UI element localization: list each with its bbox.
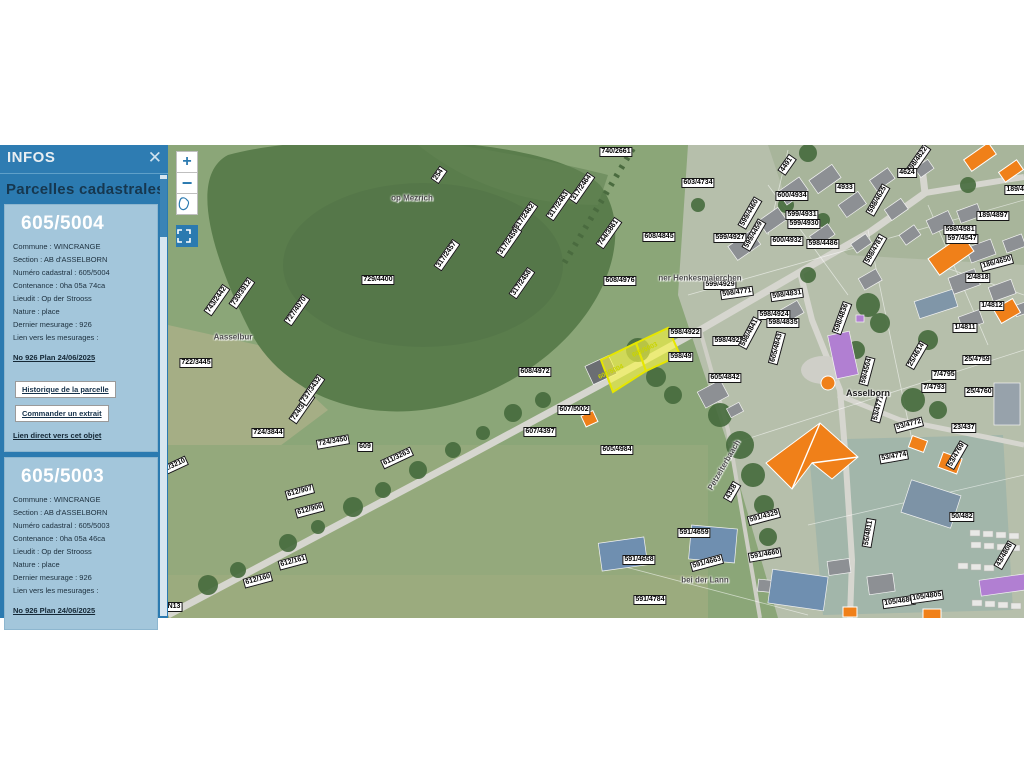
aerial-imagery [168, 145, 1024, 618]
close-icon[interactable]: ✕ [148, 148, 162, 168]
parcel-attr: Lien vers les mesurages : [13, 587, 153, 595]
fullscreen-arrows-icon [177, 229, 191, 243]
parcel-attr: Section : AB d'ASSELBORN [13, 509, 153, 517]
parcel-attr: Dernier mesurage : 926 [13, 321, 153, 329]
parcel-attr: Dernier mesurage : 926 [13, 574, 153, 582]
parcel-attr: Section : AB d'ASSELBORN [13, 256, 153, 264]
luxembourg-outline-icon [177, 197, 191, 211]
mesurage-plan-link[interactable]: No 926 Plan 24/06/2025 [13, 353, 95, 362]
zoom-to-extent-button[interactable] [176, 193, 198, 215]
direct-link[interactable]: Lien direct vers cet objet [13, 431, 101, 440]
parcel-attr: Nature : place [13, 308, 153, 316]
zoom-in-button[interactable]: + [176, 151, 198, 173]
parcel-attr: Lieudit : Op der Strooss [13, 295, 153, 303]
info-panel-header: INFOS ✕ [0, 145, 168, 174]
parcel-attr: Contenance : 0ha 05a 74ca [13, 282, 153, 290]
parcel-card-605-5003: 605/5003 Commune : WINCRANGE Section : A… [4, 457, 158, 630]
parcel-attr: Commune : WINCRANGE [13, 496, 153, 504]
panel-scrollbar[interactable] [160, 175, 167, 616]
cadastre-viewer: 740/2661603/4734608/4845608/4976608/4972… [0, 145, 1024, 618]
parcel-attr: Lien vers les mesurages : [13, 334, 153, 342]
parcel-attr: Numéro cadastral : 605/5004 [13, 269, 153, 277]
panel-title-infos: INFOS [7, 149, 55, 166]
parcel-attr: Nature : place [13, 561, 153, 569]
parcel-attr: Numéro cadastral : 605/5003 [13, 522, 153, 530]
history-button[interactable]: Historique de la parcelle [15, 381, 116, 398]
parcel-id: 605/5003 [21, 466, 153, 488]
fullscreen-button[interactable] [176, 225, 198, 247]
info-panel: INFOS ✕ Parcelles cadastrales 605/5004 C… [0, 145, 168, 618]
order-extract-button[interactable]: Commander un extrait [15, 405, 109, 422]
map-canvas[interactable]: 740/2661603/4734608/4845608/4976608/4972… [168, 145, 1024, 618]
panel-scrollbar-thumb[interactable] [160, 179, 167, 237]
parcel-attr: Contenance : 0ha 05a 46ca [13, 535, 153, 543]
zoom-out-button[interactable]: − [176, 172, 198, 194]
mesurage-plan-link[interactable]: No 926 Plan 24/06/2025 [13, 606, 95, 615]
parcel-id: 605/5004 [21, 213, 153, 235]
parcel-attr: Lieudit : Op der Strooss [13, 548, 153, 556]
panel-section-title: Parcelles cadastrales [0, 174, 168, 204]
parcel-card-605-5004: 605/5004 Commune : WINCRANGE Section : A… [4, 204, 158, 452]
parcel-attr: Commune : WINCRANGE [13, 243, 153, 251]
